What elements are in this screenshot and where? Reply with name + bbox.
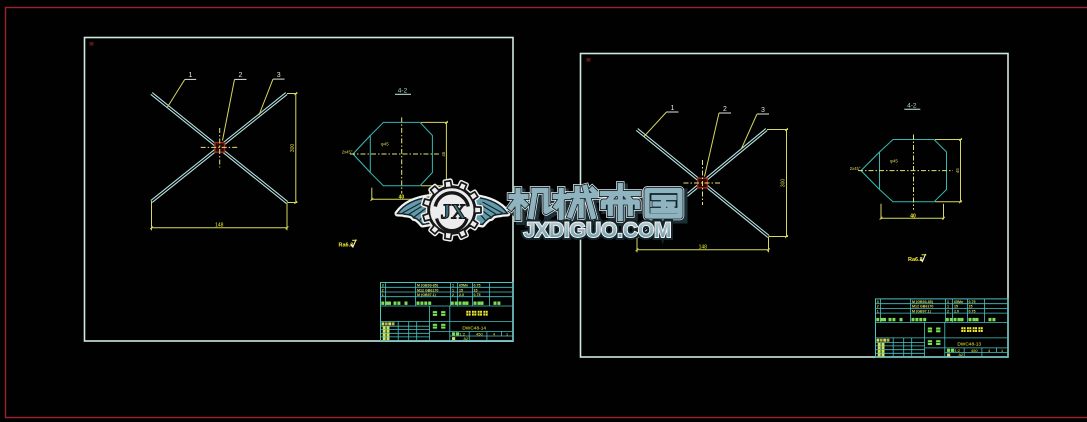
svg-text:40: 40 [910,213,916,219]
svg-text:300: 300 [290,144,296,153]
svg-text:DWC48-14: DWC48-14 [462,325,486,331]
svg-text:φ45: φ45 [381,141,389,146]
svg-text:Ra6.3: Ra6.3 [908,257,923,263]
svg-text:2x45°: 2x45° [850,166,861,171]
svg-text:Ra6.3: Ra6.3 [339,243,354,249]
svg-text:1: 1 [671,105,675,112]
svg-text:2: 2 [723,106,727,113]
svg-text:2: 2 [239,72,243,79]
svg-text:DWC48-13: DWC48-13 [957,342,981,348]
svg-text:3: 3 [761,107,765,114]
svg-text:300: 300 [781,179,787,188]
svg-text:40: 40 [399,195,405,201]
svg-text:4-2: 4-2 [398,88,408,95]
svg-text:4-2: 4-2 [907,103,917,110]
svg-text:JXDIGUO.COM: JXDIGUO.COM [524,219,672,242]
svg-text:45: 45 [441,151,446,157]
svg-text:2x45°: 2x45° [342,149,353,154]
svg-text:3: 3 [277,72,281,79]
svg-text:148: 148 [215,223,224,229]
svg-text:φ45: φ45 [890,159,898,164]
svg-text:1: 1 [189,72,193,79]
svg-text:148: 148 [699,245,708,251]
svg-text:JX: JX [440,200,466,224]
svg-text:45: 45 [955,168,960,174]
